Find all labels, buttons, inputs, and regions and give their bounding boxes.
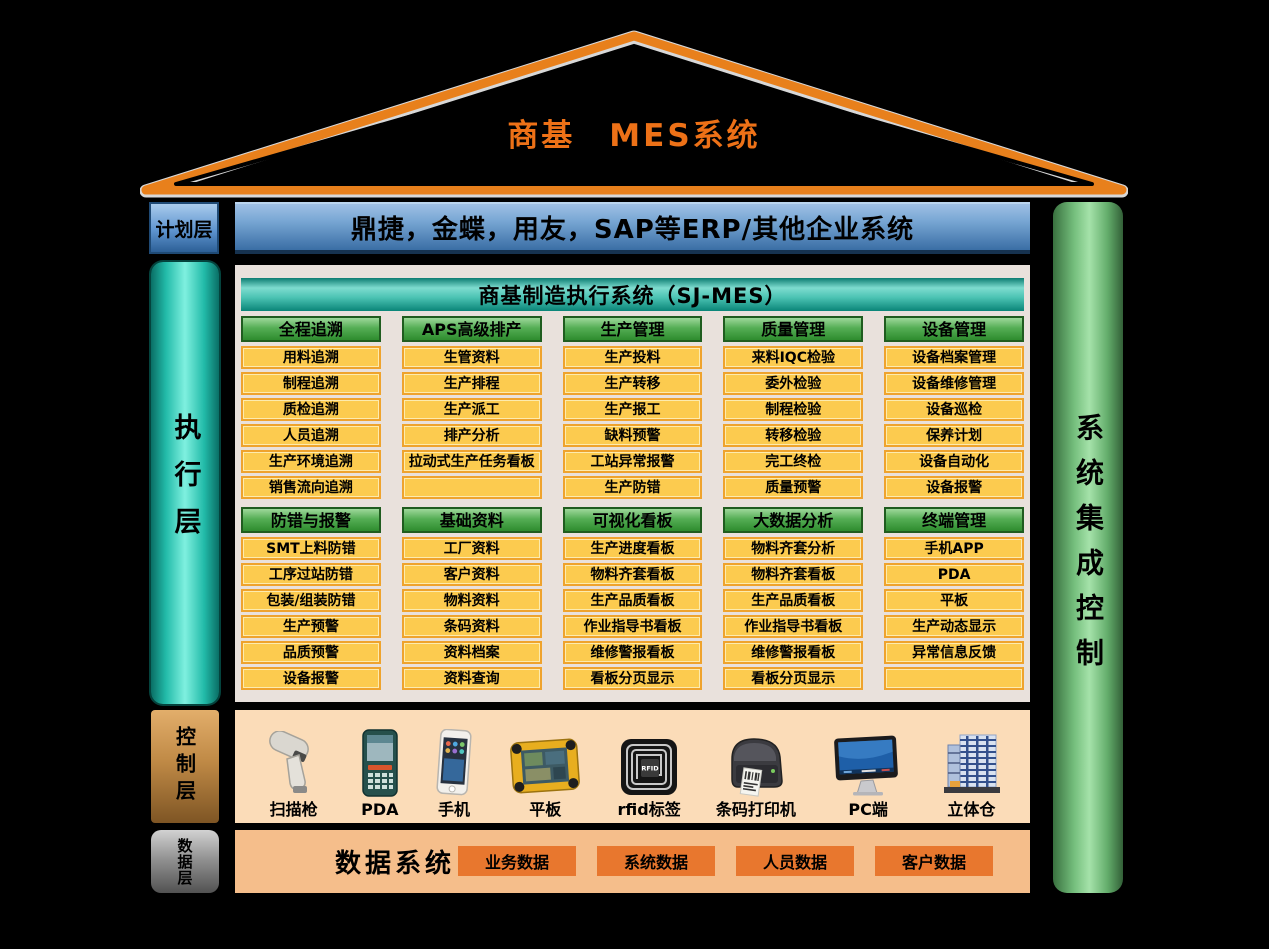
module-item: 设备巡检 [884,398,1024,421]
control-layer-label: 控制层 [171,726,200,807]
module-item: 设备报警 [884,476,1024,499]
module-item: 完工终检 [723,450,863,473]
module-item: 物料齐套看板 [563,563,703,586]
module-item [402,476,542,499]
module-column-dashboards: 可视化看板 生产进度看板物料齐套看板生产品质看板作业指导书看板维修警报看板看板分… [563,507,703,693]
module-column-traceability: 全程追溯 用料追溯制程追溯质检追溯人员追溯生产环境追溯销售流向追溯 [241,316,381,502]
module-item: 设备报警 [241,667,381,690]
module-item-list: 物料齐套分析物料齐套看板生产品质看板作业指导书看板维修警报看板看板分页显示 [723,537,863,693]
device-printer: 条码打印机 [716,714,796,821]
module-item: 生产排程 [402,372,542,395]
execution-layer-pillar: 执行层 [151,262,219,704]
module-item: 作业指导书看板 [563,615,703,638]
phone-icon [435,729,473,797]
module-item: 资料档案 [402,641,542,664]
system-integration-pillar: 系统集成控制 [1053,202,1123,893]
module-item: PDA [884,563,1024,586]
module-column-base-data: 基础资料 工厂资料客户资料物料资料条码资料资料档案资料查询 [402,507,542,693]
module-column-aps: APS高级排产 生管资料生产排程生产派工排产分析拉动式生产任务看板 [402,316,542,502]
module-item: 看板分页显示 [723,667,863,690]
mes-panel: 商基制造执行系统（SJ-MES） 全程追溯 用料追溯制程追溯质检追溯人员追溯生产… [235,265,1030,702]
device-label: PDA [361,799,398,821]
module-item: 生产进度看板 [563,537,703,560]
module-item: 生产品质看板 [563,589,703,612]
pc-icon [831,733,905,797]
device-label: 立体仓 [947,799,995,821]
data-category-button: 人员数据 [736,846,854,876]
module-item: 生产转移 [563,372,703,395]
module-item: 资料查询 [402,667,542,690]
module-item: 工站异常报警 [563,450,703,473]
module-item-list: 生产投料生产转移生产报工缺料预警工站异常报警生产防错 [563,346,703,502]
mes-panel-header: 商基制造执行系统（SJ-MES） [241,278,1024,311]
diagram-title: 商基 MES系统 [140,110,1128,155]
module-column-quality: 质量管理 来料IQC检验委外检验制程检验转移检验完工终检质量预警 [723,316,863,502]
module-item: 生管资料 [402,346,542,369]
rfid-chip-text: RFID [641,765,659,773]
data-category-button: 客户数据 [875,846,993,876]
module-row-1: 全程追溯 用料追溯制程追溯质检追溯人员追溯生产环境追溯销售流向追溯 APS高级排… [241,316,1024,502]
plan-layer-label: 计划层 [149,202,219,254]
data-category-button: 业务数据 [458,846,576,876]
device-label: PC端 [848,799,887,821]
module-item: 生产防错 [563,476,703,499]
module-item: 物料齐套看板 [723,563,863,586]
module-column-terminals: 终端管理 手机APPPDA平板生产动态显示异常信息反馈 [884,507,1024,693]
module-item: 用料追溯 [241,346,381,369]
mes-architecture-diagram: 商基 MES系统 计划层 鼎捷，金蝶，用友，SAP等ERP/其他企业系统 执行层… [0,0,1269,949]
module-header: 设备管理 [884,316,1024,342]
module-item: SMT上料防错 [241,537,381,560]
module-item: 生产动态显示 [884,615,1024,638]
device-phone: 手机 [435,714,473,821]
device-label: 平板 [529,799,561,821]
module-header: 大数据分析 [723,507,863,533]
device-tablet: 平板 [508,714,582,821]
module-header: 全程追溯 [241,316,381,342]
module-item: 缺料预警 [563,424,703,447]
device-pda: PDA [360,714,400,821]
module-item: 生产环境追溯 [241,450,381,473]
device-rfid: RFID rfid标签 [617,714,680,821]
module-column-equipment: 设备管理 设备档案管理设备维修管理设备巡检保养计划设备自动化设备报警 [884,316,1024,502]
module-item: 委外检验 [723,372,863,395]
module-item: 平板 [884,589,1024,612]
module-item: 看板分页显示 [563,667,703,690]
module-item: 质检追溯 [241,398,381,421]
tablet-icon [508,735,582,797]
module-item: 设备维修管理 [884,372,1024,395]
module-item-list: 用料追溯制程追溯质检追溯人员追溯生产环境追溯销售流向追溯 [241,346,381,502]
barcode-printer-icon [720,731,792,797]
device-scanner: 扫描枪 [263,714,325,821]
module-item: 保养计划 [884,424,1024,447]
module-item-list: 生管资料生产排程生产派工排产分析拉动式生产任务看板 [402,346,542,502]
module-item-list: 设备档案管理设备维修管理设备巡检保养计划设备自动化设备报警 [884,346,1024,502]
module-item: 生产派工 [402,398,542,421]
module-item: 质量预警 [723,476,863,499]
device-pc: PC端 [831,714,905,821]
module-header: 生产管理 [563,316,703,342]
module-item-list: 生产进度看板物料齐套看板生产品质看板作业指导书看板维修警报看板看板分页显示 [563,537,703,693]
warehouse-icon [940,731,1002,797]
module-header: 基础资料 [402,507,542,533]
module-column-error-proofing: 防错与报警 SMT上料防错工序过站防错包装/组装防错生产预警品质预警设备报警 [241,507,381,693]
module-item: 维修警报看板 [563,641,703,664]
module-item: 设备档案管理 [884,346,1024,369]
control-devices-bar: 扫描枪 PDA [235,710,1030,823]
module-item-list: 工厂资料客户资料物料资料条码资料资料档案资料查询 [402,537,542,693]
module-item: 排产分析 [402,424,542,447]
module-item: 条码资料 [402,615,542,638]
data-layer-label: 数据层 [175,838,196,886]
device-label: 扫描枪 [270,799,318,821]
data-system-bar: 数据系统 业务数据系统数据人员数据客户数据 [235,830,1030,893]
module-item: 工厂资料 [402,537,542,560]
module-header: 质量管理 [723,316,863,342]
pda-icon [360,729,400,797]
module-item: 制程检验 [723,398,863,421]
system-integration-label: 系统集成控制 [1068,413,1108,683]
module-header: APS高级排产 [402,316,542,342]
module-item: 包装/组装防错 [241,589,381,612]
data-layer-label-box: 数据层 [151,830,219,893]
module-item: 制程追溯 [241,372,381,395]
module-header: 可视化看板 [563,507,703,533]
barcode-scanner-icon [263,731,325,797]
rfid-tag-icon: RFID [619,737,679,797]
device-label: 手机 [438,799,470,821]
module-header: 终端管理 [884,507,1024,533]
module-item-list: SMT上料防错工序过站防错包装/组装防错生产预警品质预警设备报警 [241,537,381,693]
module-item: 客户资料 [402,563,542,586]
data-category-list: 业务数据系统数据人员数据客户数据 [458,846,993,876]
module-item: 物料资料 [402,589,542,612]
execution-layer-label: 执行层 [166,413,205,554]
module-column-production: 生产管理 生产投料生产转移生产报工缺料预警工站异常报警生产防错 [563,316,703,502]
module-item: 转移检验 [723,424,863,447]
module-item-list: 手机APPPDA平板生产动态显示异常信息反馈 [884,537,1024,693]
control-layer-label-box: 控制层 [151,710,219,823]
module-item [884,667,1024,690]
module-item: 生产投料 [563,346,703,369]
module-item: 设备自动化 [884,450,1024,473]
module-item: 生产报工 [563,398,703,421]
module-header: 防错与报警 [241,507,381,533]
module-item: 维修警报看板 [723,641,863,664]
erp-systems-bar: 鼎捷，金蝶，用友，SAP等ERP/其他企业系统 [235,202,1030,254]
device-label: rfid标签 [617,799,680,821]
module-item: 来料IQC检验 [723,346,863,369]
device-warehouse: 立体仓 [940,714,1002,821]
module-item-list: 来料IQC检验委外检验制程检验转移检验完工终检质量预警 [723,346,863,502]
module-item: 异常信息反馈 [884,641,1024,664]
module-item: 生产预警 [241,615,381,638]
module-item: 物料齐套分析 [723,537,863,560]
module-item: 工序过站防错 [241,563,381,586]
module-column-big-data: 大数据分析 物料齐套分析物料齐套看板生产品质看板作业指导书看板维修警报看板看板分… [723,507,863,693]
module-item: 品质预警 [241,641,381,664]
module-item: 手机APP [884,537,1024,560]
module-item: 作业指导书看板 [723,615,863,638]
module-item: 销售流向追溯 [241,476,381,499]
module-item: 生产品质看板 [723,589,863,612]
module-item: 人员追溯 [241,424,381,447]
module-row-2: 防错与报警 SMT上料防错工序过站防错包装/组装防错生产预警品质预警设备报警 基… [241,507,1024,693]
data-category-button: 系统数据 [597,846,715,876]
device-label: 条码打印机 [716,799,796,821]
module-item: 拉动式生产任务看板 [402,450,542,473]
